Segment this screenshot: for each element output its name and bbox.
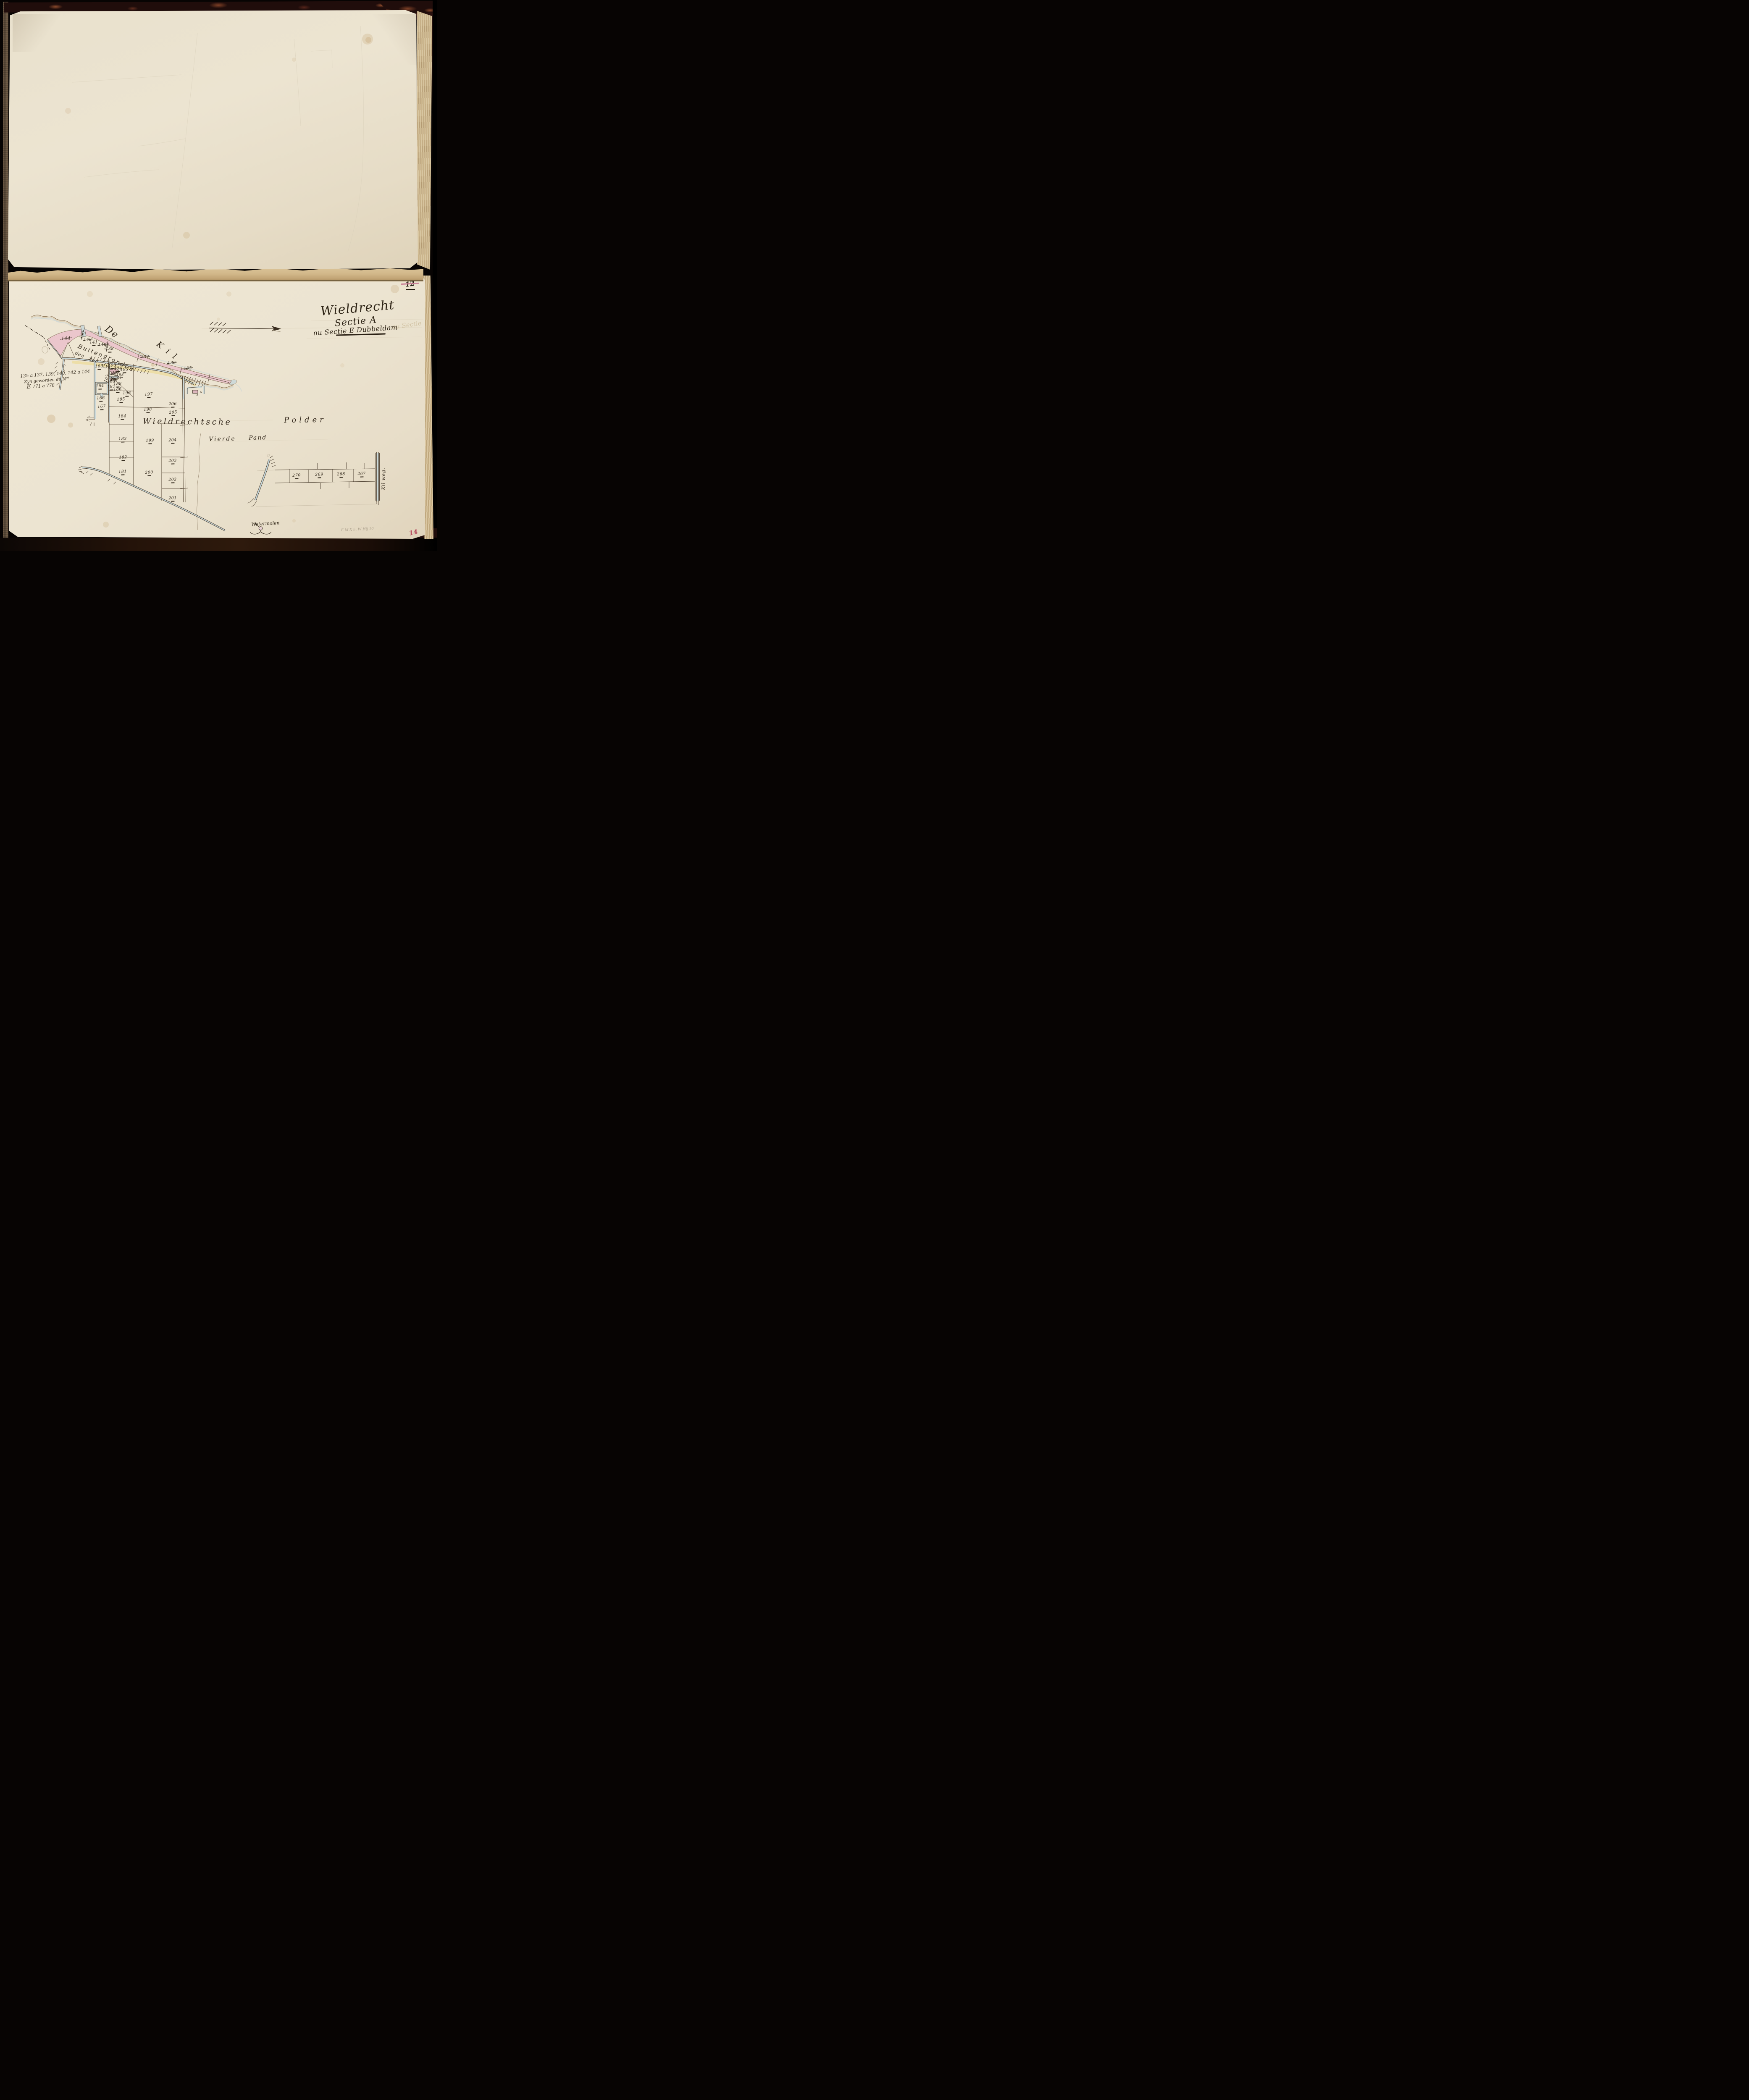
parcel-135: 135 [184, 366, 192, 371]
inset-creek [255, 459, 269, 500]
polder-label-1: Wieldrechtsche [143, 417, 232, 427]
parcel-205: 205 [169, 410, 177, 415]
parcel-268: 268 [337, 472, 345, 477]
parcel-141: 141 [89, 340, 98, 345]
parcel-166: 166 [97, 396, 105, 401]
pand-label-2: Pand [249, 434, 267, 441]
parcel-184: 184 [118, 414, 126, 419]
map-artwork [0, 0, 437, 551]
section-boundary-line [25, 325, 50, 350]
kade-canal [82, 467, 225, 531]
page-number-underline [406, 289, 415, 290]
farm-building [193, 390, 198, 394]
farmstead [187, 385, 207, 396]
pand-label-1: Vierde [209, 436, 236, 443]
parcel-270: 270 [292, 473, 301, 478]
parcel-183: 183 [118, 436, 127, 441]
parcel-185: 185 [117, 397, 125, 402]
parcel-137: 137 [141, 354, 149, 360]
parcel-203: 203 [168, 458, 177, 463]
parcel-167: 167 [97, 404, 106, 409]
parcel-138: 138 [105, 346, 114, 352]
parcel-144: 144 [61, 336, 71, 341]
parcel-136: 136 [168, 360, 176, 365]
kil-weg-label: Kil weg. [381, 467, 386, 490]
polder-label-2: Polder [284, 415, 326, 425]
parcel-197: 197 [144, 392, 153, 397]
parcel-200: 200 [145, 470, 153, 475]
parcel-181: 181 [118, 469, 127, 474]
foxing-stains [38, 34, 399, 528]
parcel-164: 164 [96, 383, 104, 388]
parcel-201: 201 [168, 496, 177, 501]
pencil-circle [42, 346, 49, 354]
book-scan: 12 14 E M X h. W Hij 10 Wieldrecht Secti… [0, 0, 437, 551]
parcel-199: 199 [146, 438, 154, 443]
parcel-182: 182 [119, 455, 127, 460]
parcel-strip-inset [247, 452, 380, 507]
north-arrow [209, 322, 281, 333]
parcel-186: 186 [113, 387, 122, 392]
village-canals [59, 360, 108, 420]
note-line3-initial: E [26, 383, 31, 390]
parcel-206: 206 [168, 402, 177, 407]
parcel-269: 269 [315, 472, 323, 477]
parcel-163: 163 [95, 364, 103, 369]
zeedijk [47, 340, 229, 386]
parcel-198: 198 [144, 407, 152, 412]
parcel-267: 267 [357, 471, 366, 476]
parcel-202: 202 [168, 477, 177, 482]
note-line3-numbers: 771 a 778 [32, 383, 55, 389]
parcel-196: 196 [123, 391, 131, 396]
parcel-195: 195 [120, 367, 129, 372]
note-line2-sup: os [66, 375, 69, 379]
kil-weg-road [377, 453, 379, 501]
verso-ghost-lines [72, 26, 364, 252]
parcel-204: 204 [168, 438, 177, 443]
